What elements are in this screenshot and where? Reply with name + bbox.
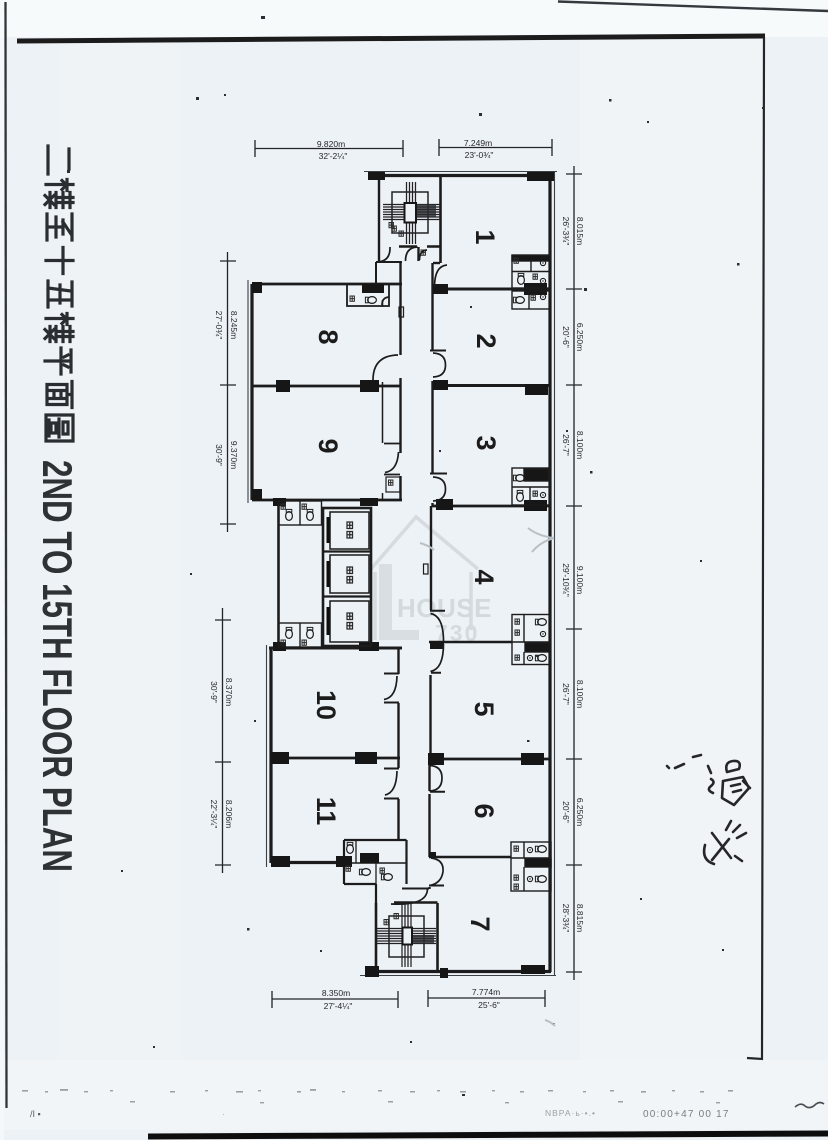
svg-text:2ND TO 15TH FLOOR PLAN: 2ND TO 15TH FLOOR PLAN [34,460,81,872]
svg-text:3: 3 [471,435,501,450]
svg-text:·: · [222,1109,225,1119]
svg-text:9.100m: 9.100m [575,566,585,594]
svg-text:8.370m: 8.370m [224,678,234,706]
svg-text:1: 1 [470,229,500,244]
svg-text:30'-9": 30'-9" [209,681,219,703]
svg-text:8.350m: 8.350m [322,988,350,998]
svg-text:20'-6": 20'-6" [561,326,571,348]
svg-text:5: 5 [469,701,499,716]
svg-text:4: 4 [469,569,499,584]
svg-text:7: 7 [465,916,495,931]
svg-text:27'-0¾": 27'-0¾" [214,311,224,340]
svg-text:7.249m: 7.249m [464,138,492,148]
svg-text:26'-7": 26'-7" [561,683,571,705]
svg-text:23'-0¾": 23'-0¾" [465,150,494,160]
svg-text:27'-4¼": 27'-4¼" [324,1001,353,1011]
svg-text:2: 2 [471,333,501,348]
svg-text:8.245m: 8.245m [229,311,239,339]
svg-text:9: 9 [313,438,343,453]
svg-text:8.815m: 8.815m [575,904,585,932]
svg-text:8.015m: 8.015m [575,217,585,245]
svg-text:22'-3¼": 22'-3¼" [209,800,219,829]
svg-text:30'-9": 30'-9" [214,444,224,466]
svg-text:26'-7": 26'-7" [561,434,571,456]
svg-text:9.370m: 9.370m [229,441,239,469]
svg-text:11: 11 [311,797,341,826]
svg-text:00:00+47 00 17: 00:00+47 00 17 [643,1109,730,1120]
svg-text:6.250m: 6.250m [575,798,585,826]
svg-text:7.774m: 7.774m [472,987,500,997]
svg-text:8.100m: 8.100m [575,431,585,459]
svg-text:25'-6": 25'-6" [478,1000,500,1010]
svg-text:6: 6 [469,803,499,818]
svg-text:/I ▪: /I ▪ [30,1109,41,1119]
svg-text:26'-3¾": 26'-3¾" [561,217,571,246]
svg-text:9.820m: 9.820m [317,139,345,149]
svg-text:29'-10¾": 29'-10¾" [561,563,571,596]
svg-text:8.100m: 8.100m [575,680,585,708]
svg-text:8.206m: 8.206m [224,800,234,828]
svg-text:32'-2¼": 32'-2¼" [319,151,348,161]
svg-text:6.250m: 6.250m [575,323,585,351]
svg-text:28'-3¾": 28'-3¾" [561,904,571,933]
svg-text:20'-6": 20'-6" [561,801,571,823]
svg-text:NBPA·ь·•.•: NBPA·ь·•.• [545,1108,596,1118]
svg-text:10: 10 [311,690,341,720]
svg-text:HOUSE: HOUSE [397,593,492,623]
svg-text:8: 8 [313,329,343,344]
